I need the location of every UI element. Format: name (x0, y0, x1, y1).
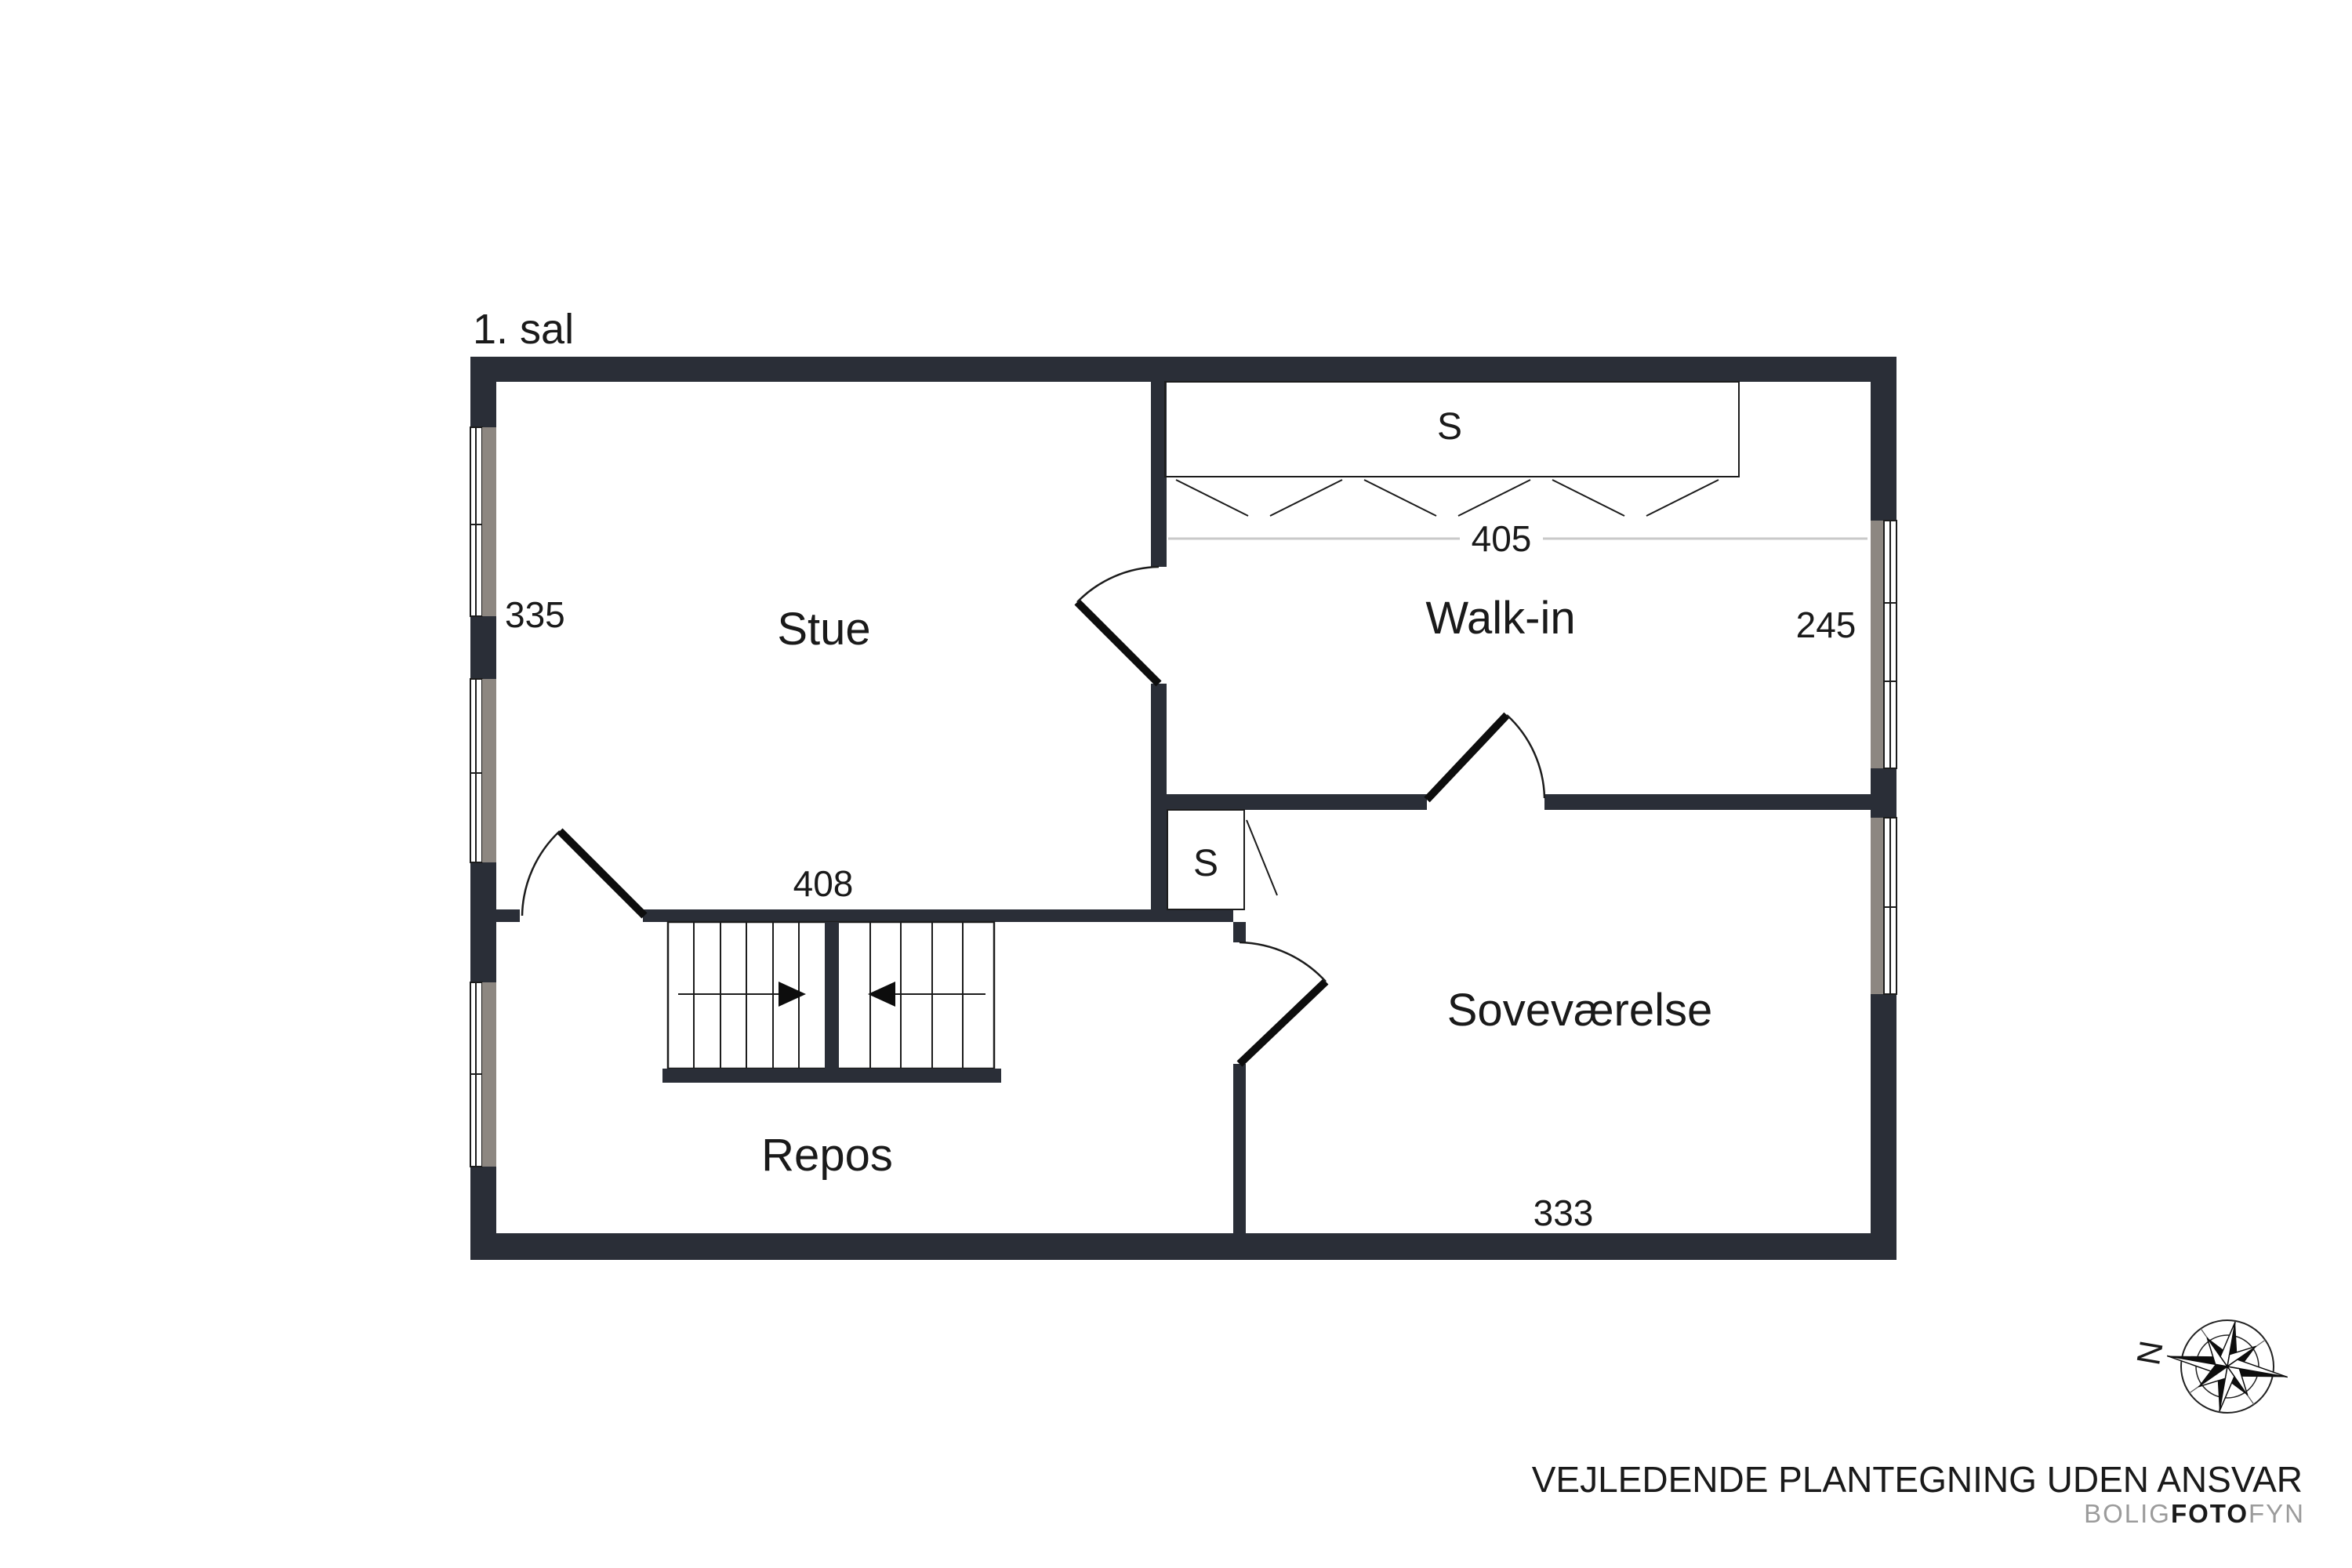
dim-408: 408 (793, 863, 854, 904)
dim-405: 405 (1472, 518, 1532, 559)
brand-part-foto: FOTO (2171, 1499, 2249, 1528)
wall-right-seg1 (1871, 357, 1896, 521)
brand-part-fyn: FYN (2249, 1499, 2305, 1528)
door-walkin-sove (1427, 715, 1544, 800)
wall-left-seg3 (470, 862, 496, 982)
wall-left-seg4 (470, 1167, 496, 1260)
footer-disclaimer: VEJLEDENDE PLANTEGNING UDEN ANSVAR (1532, 1459, 2303, 1500)
wardrobe-rail-hatch (1176, 480, 1719, 516)
wardrobe: S (1165, 382, 1739, 516)
brand-part-bolig: BOLIG (2084, 1499, 2171, 1528)
floor-plan-canvas: 1. sal (0, 0, 2352, 1568)
footer: VEJLEDENDE PLANTEGNING UDEN ANSVAR BOLIG… (1532, 1459, 2305, 1528)
room-label-sovevaerelse: Soveværelse (1447, 985, 1712, 1036)
stair-center-divider (825, 922, 839, 1083)
dim-245: 245 (1796, 604, 1857, 645)
hall-closet-label: S (1193, 843, 1218, 884)
floor-plan-page: 1. sal (0, 0, 2352, 1568)
hall-closet-door-line (1247, 820, 1277, 895)
door-repos-stue (522, 831, 644, 916)
wardrobe-label: S (1437, 406, 1462, 448)
dimension-labels: 335 405 245 408 333 (505, 518, 1856, 1233)
floor-title: 1. sal (473, 306, 574, 353)
wall-bottom (470, 1233, 1896, 1260)
door-stue-walkin (1077, 567, 1159, 684)
room-label-walkin: Walk-in (1425, 593, 1575, 644)
wall-repos-sove-stub (1233, 922, 1246, 942)
wall-walkin-sove-right (1544, 794, 1871, 810)
compass-rose: N (2124, 1304, 2296, 1422)
wall-repos-top (643, 909, 1233, 922)
window-right-2 (1871, 818, 1896, 994)
wall-right-seg2 (1871, 768, 1896, 818)
wall-right-seg3 (1871, 994, 1896, 1260)
wall-top (470, 357, 1896, 382)
hall-closet: S (1167, 810, 1277, 909)
door-repos-sove (1240, 942, 1326, 1064)
window-left-1 (470, 427, 496, 616)
wall-left-seg1 (470, 357, 496, 427)
dim-335: 335 (505, 594, 565, 635)
room-label-repos: Repos (761, 1130, 893, 1181)
wall-walkin-sove-left (1151, 794, 1427, 810)
stair-bottom-edge (662, 1069, 1001, 1083)
staircase (662, 922, 1001, 1083)
dim-333: 333 (1534, 1192, 1594, 1233)
window-left-3 (470, 982, 496, 1167)
window-right-1 (1871, 521, 1896, 768)
interior-walls (496, 382, 1871, 1233)
wall-repos-stub-left (496, 909, 520, 922)
room-label-stue: Stue (777, 604, 870, 655)
wall-repos-sove-lower (1233, 1064, 1246, 1233)
wall-left-seg2 (470, 616, 496, 679)
compass-north-label: N (2129, 1338, 2170, 1368)
footer-brand-logo: BOLIGFOTOFYN (2084, 1499, 2305, 1528)
window-left-2 (470, 679, 496, 862)
